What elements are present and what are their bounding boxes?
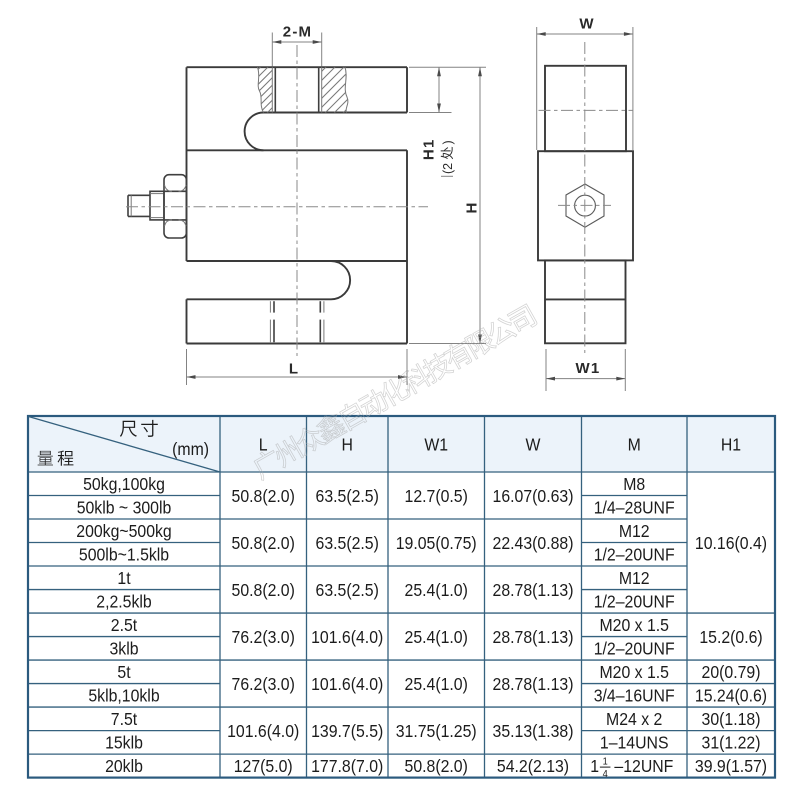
- svg-text:2,2.5klb: 2,2.5klb: [96, 592, 151, 612]
- svg-text:16.07(0.63): 16.07(0.63): [493, 486, 574, 506]
- svg-text:3/4–16UNF: 3/4–16UNF: [594, 686, 675, 706]
- svg-text:1/2–20UNF: 1/2–20UNF: [594, 592, 675, 612]
- svg-text:127(5.0): 127(5.0): [234, 756, 293, 776]
- svg-text:M: M: [628, 434, 641, 454]
- svg-text:1/2–20UNF: 1/2–20UNF: [594, 639, 675, 659]
- svg-text:50.8(2.0): 50.8(2.0): [232, 486, 295, 506]
- svg-text:W: W: [526, 434, 541, 454]
- svg-text:L: L: [289, 361, 299, 378]
- svg-text:200kg~500kg: 200kg~500kg: [76, 521, 171, 541]
- svg-text:M12: M12: [619, 521, 650, 541]
- svg-text:139.7(5.5): 139.7(5.5): [311, 721, 383, 741]
- svg-text:1: 1: [603, 756, 609, 768]
- svg-text:(2: (2: [441, 163, 455, 174]
- svg-text:2.5t: 2.5t: [111, 615, 138, 635]
- svg-text:177.8(7.0): 177.8(7.0): [311, 756, 383, 776]
- svg-text:76.2(3.0): 76.2(3.0): [232, 627, 295, 647]
- svg-text:M24 x 2: M24 x 2: [606, 709, 662, 729]
- svg-text:50klb ~ 300lb: 50klb ~ 300lb: [77, 498, 172, 518]
- svg-text:50kg,100kg: 50kg,100kg: [83, 474, 165, 494]
- svg-text:(mm): (mm): [172, 439, 209, 459]
- svg-text:M8: M8: [623, 474, 645, 494]
- svg-text:63.5(2.5): 63.5(2.5): [316, 580, 379, 600]
- svg-text:50.8(2.0): 50.8(2.0): [232, 533, 295, 553]
- svg-text:L: L: [259, 434, 268, 454]
- svg-text:22.43(0.88): 22.43(0.88): [493, 533, 574, 553]
- svg-text:H1: H1: [421, 139, 438, 161]
- svg-text:5klb,10klb: 5klb,10klb: [88, 686, 159, 706]
- svg-text:2-M: 2-M: [283, 24, 312, 41]
- svg-text:1/4–28UNF: 1/4–28UNF: [594, 498, 675, 518]
- svg-text:H: H: [464, 201, 481, 213]
- svg-text:1t: 1t: [117, 568, 130, 588]
- svg-text:50.8(2.0): 50.8(2.0): [405, 756, 468, 776]
- svg-text:1/2–20UNF: 1/2–20UNF: [594, 545, 675, 565]
- svg-text:63.5(2.5): 63.5(2.5): [316, 486, 379, 506]
- svg-text:20klb: 20klb: [105, 756, 143, 776]
- svg-text:M12: M12: [619, 568, 650, 588]
- svg-text:50.8(2.0): 50.8(2.0): [232, 580, 295, 600]
- svg-text:101.6(4.0): 101.6(4.0): [311, 674, 383, 694]
- svg-text:1–14UNS: 1–14UNS: [600, 733, 669, 753]
- svg-text:25.4(1.0): 25.4(1.0): [405, 580, 468, 600]
- svg-text:35.13(1.38): 35.13(1.38): [493, 721, 574, 741]
- svg-text:–12UNF: –12UNF: [614, 756, 673, 776]
- svg-text:): ): [441, 140, 455, 144]
- svg-text:1: 1: [590, 756, 599, 776]
- svg-text:500lb~1.5klb: 500lb~1.5klb: [79, 545, 169, 565]
- svg-text:39.9(1.57): 39.9(1.57): [695, 756, 767, 776]
- svg-text:25.4(1.0): 25.4(1.0): [405, 627, 468, 647]
- svg-text:W: W: [579, 16, 594, 33]
- svg-text:15.2(0.6): 15.2(0.6): [699, 627, 762, 647]
- svg-text:28.78(1.13): 28.78(1.13): [493, 627, 574, 647]
- svg-text:4: 4: [603, 769, 609, 781]
- svg-text:101.6(4.0): 101.6(4.0): [227, 721, 299, 741]
- svg-text:7.5t: 7.5t: [111, 709, 138, 729]
- svg-text:101.6(4.0): 101.6(4.0): [311, 627, 383, 647]
- svg-text:M20 x 1.5: M20 x 1.5: [599, 662, 668, 682]
- svg-text:15.24(0.6): 15.24(0.6): [695, 686, 767, 706]
- svg-text:28.78(1.13): 28.78(1.13): [493, 674, 574, 694]
- svg-text:28.78(1.13): 28.78(1.13): [493, 580, 574, 600]
- svg-text:19.05(0.75): 19.05(0.75): [396, 533, 477, 553]
- svg-text:10.16(0.4): 10.16(0.4): [695, 533, 767, 553]
- svg-text:12.7(0.5): 12.7(0.5): [405, 486, 468, 506]
- svg-text:20(0.79): 20(0.79): [702, 662, 761, 682]
- svg-text:5t: 5t: [117, 662, 130, 682]
- svg-text:30(1.18): 30(1.18): [702, 709, 761, 729]
- svg-text:3klb: 3klb: [109, 639, 138, 659]
- svg-text:31(1.22): 31(1.22): [702, 733, 761, 753]
- svg-text:76.2(3.0): 76.2(3.0): [232, 674, 295, 694]
- svg-text:31.75(1.25): 31.75(1.25): [396, 721, 477, 741]
- svg-text:H1: H1: [721, 434, 741, 454]
- svg-text:25.4(1.0): 25.4(1.0): [405, 674, 468, 694]
- svg-text:15klb: 15klb: [105, 733, 143, 753]
- svg-text:63.5(2.5): 63.5(2.5): [316, 533, 379, 553]
- svg-text:54.2(2.13): 54.2(2.13): [497, 756, 569, 776]
- svg-text:W1: W1: [576, 360, 601, 377]
- svg-text:M20 x 1.5: M20 x 1.5: [599, 615, 668, 635]
- svg-text:H: H: [341, 434, 352, 454]
- svg-text:W1: W1: [424, 434, 448, 454]
